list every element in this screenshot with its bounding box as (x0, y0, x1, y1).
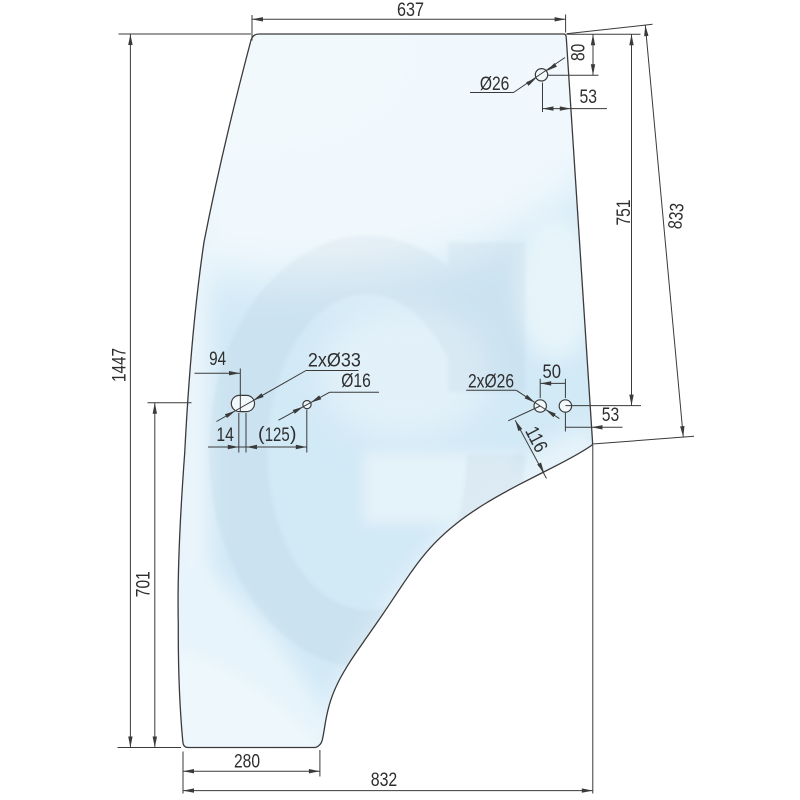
svg-text:Ø16: Ø16 (341, 370, 371, 392)
svg-text:53: 53 (602, 404, 620, 426)
svg-text:): ) (290, 423, 297, 445)
svg-text:50: 50 (543, 361, 562, 383)
svg-text:637: 637 (397, 0, 424, 21)
svg-text:833: 833 (664, 202, 688, 230)
svg-text:2xØ26: 2xØ26 (468, 370, 514, 392)
svg-text:14: 14 (216, 424, 234, 446)
svg-text:751: 751 (613, 200, 635, 226)
svg-text:701: 701 (132, 571, 154, 597)
svg-text:125: 125 (265, 424, 290, 446)
svg-text:832: 832 (371, 769, 398, 791)
svg-text:2xØ33: 2xØ33 (308, 350, 361, 372)
svg-text:Ø26: Ø26 (480, 73, 510, 95)
svg-text:1447: 1447 (109, 348, 131, 382)
svg-text:94: 94 (209, 348, 226, 370)
svg-text:280: 280 (234, 750, 260, 772)
svg-text:80: 80 (567, 44, 589, 61)
svg-text:53: 53 (580, 86, 598, 108)
